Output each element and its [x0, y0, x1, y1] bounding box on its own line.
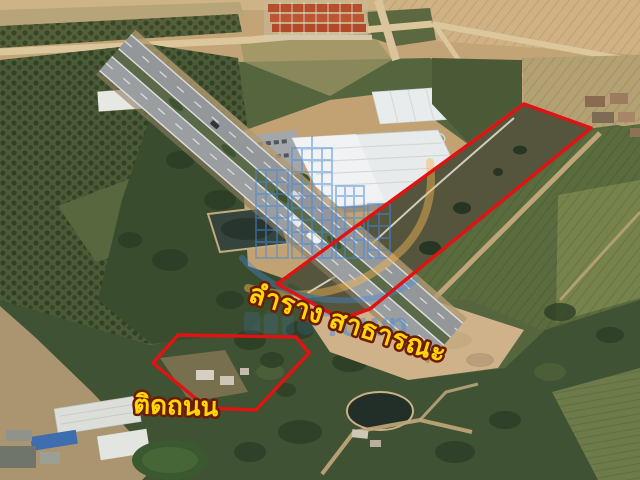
aerial-scene: Town ลำราง สาธารณะ ติดถนน: [0, 0, 640, 480]
road-front-label: ติดถนน: [133, 389, 219, 422]
aerial-photo: Town ลำราง สาธารณะ ติดถนน: [0, 0, 640, 480]
housing-estate: [264, 1, 372, 40]
